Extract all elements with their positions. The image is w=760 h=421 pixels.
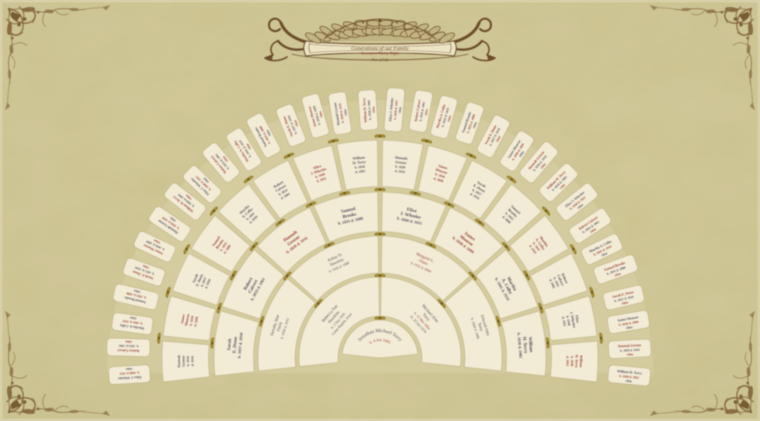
svg-text:Ohio: Ohio (125, 367, 132, 371)
svg-text:Ohio: Ohio (398, 106, 403, 113)
svg-text:Tree of Life: Tree of Life (371, 58, 389, 62)
svg-text:Ohio: Ohio (125, 340, 132, 344)
svg-text:Ohio: Ohio (627, 352, 634, 356)
svg-text:d. 1916: d. 1916 (190, 356, 194, 366)
svg-text:Seventeen Ninety-Eight: Seventeen Ninety-Eight (361, 51, 399, 56)
svg-text:Ohio: Ohio (625, 379, 632, 384)
svg-text:Ohio: Ohio (371, 106, 375, 113)
svg-text:d. 1902: d. 1902 (565, 356, 569, 366)
